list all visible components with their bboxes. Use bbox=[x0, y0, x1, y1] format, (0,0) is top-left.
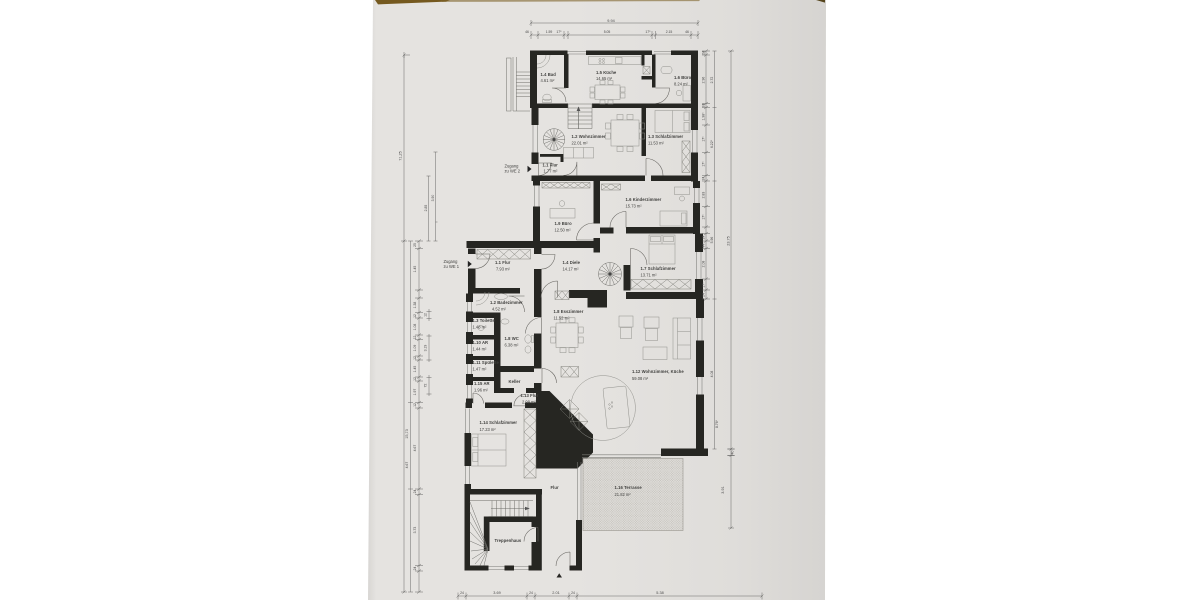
svg-text:1.4 Bad: 1.4 Bad bbox=[541, 72, 557, 77]
svg-text:4.67: 4.67 bbox=[413, 445, 417, 452]
svg-text:24: 24 bbox=[702, 293, 706, 297]
svg-text:17⁵: 17⁵ bbox=[702, 214, 706, 220]
svg-text:12.50 m²: 12.50 m² bbox=[555, 228, 572, 233]
svg-text:1.47 m²: 1.47 m² bbox=[473, 367, 488, 372]
svg-text:24: 24 bbox=[413, 567, 417, 571]
svg-text:46: 46 bbox=[525, 30, 529, 34]
svg-text:15.73 m²: 15.73 m² bbox=[626, 204, 643, 209]
svg-text:24: 24 bbox=[413, 490, 417, 494]
svg-text:24: 24 bbox=[571, 591, 575, 595]
svg-text:1.2 Badezimmer: 1.2 Badezimmer bbox=[490, 300, 523, 305]
svg-text:2.01: 2.01 bbox=[552, 591, 559, 595]
svg-text:9.94: 9.94 bbox=[607, 19, 614, 23]
svg-text:17⁵: 17⁵ bbox=[556, 30, 562, 34]
svg-text:1.77 m²: 1.77 m² bbox=[544, 169, 559, 174]
svg-text:1.1 Flur: 1.1 Flur bbox=[543, 163, 559, 168]
svg-text:1.59: 1.59 bbox=[546, 30, 553, 34]
svg-text:4.52 m²: 4.52 m² bbox=[492, 307, 507, 312]
svg-text:2.15: 2.15 bbox=[666, 30, 673, 34]
svg-text:3.91: 3.91 bbox=[721, 486, 725, 493]
svg-text:2.83: 2.83 bbox=[702, 192, 706, 199]
svg-text:25: 25 bbox=[413, 243, 417, 247]
svg-text:1.44 m²: 1.44 m² bbox=[473, 347, 488, 352]
svg-text:1.15 AR: 1.15 AR bbox=[474, 381, 490, 386]
svg-text:11.52 m²: 11.52 m² bbox=[554, 316, 570, 321]
svg-text:71,25: 71,25 bbox=[399, 151, 403, 161]
svg-text:12: 12 bbox=[413, 356, 417, 360]
svg-text:1.1 Flur: 1.1 Flur bbox=[495, 260, 511, 265]
svg-text:2.99 m²: 2.99 m² bbox=[522, 400, 537, 405]
svg-text:1.6 Kinderzimmer: 1.6 Kinderzimmer bbox=[626, 197, 662, 202]
svg-text:12: 12 bbox=[413, 336, 417, 340]
svg-text:1.48 m²: 1.48 m² bbox=[473, 325, 488, 330]
svg-text:5.38: 5.38 bbox=[656, 591, 663, 595]
svg-text:1.5 Küche: 1.5 Küche bbox=[596, 70, 617, 75]
svg-text:1.8 Esszimmer: 1.8 Esszimmer bbox=[554, 309, 584, 314]
svg-text:21.82 m²: 21.82 m² bbox=[615, 492, 632, 497]
svg-text:1.7 Schlafzimmer: 1.7 Schlafzimmer bbox=[641, 266, 676, 271]
svg-text:3.73: 3.73 bbox=[413, 527, 417, 534]
svg-text:Flur: Flur bbox=[551, 485, 559, 490]
svg-text:1.12 Wohnzimmer, Küche: 1.12 Wohnzimmer, Küche bbox=[632, 369, 684, 374]
svg-text:24: 24 bbox=[529, 591, 533, 595]
svg-text:1.11 Spülette: 1.11 Spülette bbox=[473, 360, 500, 365]
svg-text:13.71 m²: 13.71 m² bbox=[641, 273, 658, 278]
svg-text:1.2 Wohnzimmer: 1.2 Wohnzimmer bbox=[572, 134, 606, 139]
svg-text:zu WE 2: zu WE 2 bbox=[505, 169, 521, 174]
svg-text:14.65 m²: 14.65 m² bbox=[596, 76, 613, 81]
svg-text:12: 12 bbox=[413, 314, 417, 318]
svg-text:40: 40 bbox=[731, 451, 735, 455]
svg-text:12: 12 bbox=[413, 377, 417, 381]
svg-text:8.24 m²: 8.24 m² bbox=[674, 82, 689, 87]
svg-text:1.4 Diele: 1.4 Diele bbox=[563, 260, 581, 265]
svg-text:1.6 Büro: 1.6 Büro bbox=[674, 75, 692, 80]
svg-text:6.22⁵: 6.22⁵ bbox=[710, 139, 714, 148]
svg-text:1.14 Schlafzimmer: 1.14 Schlafzimmer bbox=[480, 420, 518, 425]
svg-text:1.10 AR: 1.10 AR bbox=[473, 340, 489, 345]
svg-text:5.96: 5.96 bbox=[710, 237, 714, 244]
svg-text:1.96 m²: 1.96 m² bbox=[474, 388, 489, 393]
svg-text:6.38 m²: 6.38 m² bbox=[505, 343, 520, 348]
svg-text:5.05: 5.05 bbox=[604, 30, 611, 34]
svg-text:17⁵: 17⁵ bbox=[645, 30, 651, 34]
svg-text:17.23 m²: 17.23 m² bbox=[480, 427, 497, 432]
svg-text:4.08: 4.08 bbox=[710, 371, 714, 378]
svg-text:4.61 m²: 4.61 m² bbox=[541, 78, 556, 83]
svg-text:zu WE 1: zu WE 1 bbox=[444, 264, 460, 269]
svg-text:72: 72 bbox=[424, 384, 428, 388]
svg-text:15,73: 15,73 bbox=[405, 429, 409, 439]
svg-text:1.13 Flur: 1.13 Flur bbox=[521, 393, 539, 398]
svg-text:17⁵: 17⁵ bbox=[702, 282, 706, 288]
svg-text:1.8 WC: 1.8 WC bbox=[505, 336, 519, 341]
svg-text:Keller: Keller bbox=[509, 379, 521, 384]
svg-text:24: 24 bbox=[460, 591, 464, 595]
svg-text:44⁵: 44⁵ bbox=[702, 242, 706, 248]
svg-text:1.16 Terrasse: 1.16 Terrasse bbox=[615, 485, 643, 490]
svg-text:12: 12 bbox=[424, 313, 428, 317]
svg-text:14.17 m²: 14.17 m² bbox=[563, 267, 580, 272]
svg-text:1.45: 1.45 bbox=[413, 266, 417, 273]
svg-text:Treppenhaus: Treppenhaus bbox=[495, 538, 522, 543]
svg-text:17⁵: 17⁵ bbox=[702, 136, 706, 142]
svg-text:4.67: 4.67 bbox=[405, 462, 409, 469]
svg-text:1.09: 1.09 bbox=[413, 345, 417, 352]
svg-text:8.76⁵: 8.76⁵ bbox=[715, 419, 719, 428]
svg-text:1.9 Büro: 1.9 Büro bbox=[555, 221, 573, 226]
svg-text:12: 12 bbox=[413, 403, 417, 407]
svg-text:24: 24 bbox=[702, 236, 706, 240]
svg-text:3.90: 3.90 bbox=[431, 195, 435, 202]
svg-text:1.08: 1.08 bbox=[413, 324, 417, 331]
svg-text:11.53 m²: 11.53 m² bbox=[648, 141, 664, 146]
svg-text:22.01 m²: 22.01 m² bbox=[572, 141, 589, 146]
svg-text:1.38⁵: 1.38⁵ bbox=[702, 112, 706, 121]
svg-text:17⁵: 17⁵ bbox=[702, 161, 706, 167]
svg-text:1.3 Schlafzimmer: 1.3 Schlafzimmer bbox=[648, 134, 683, 139]
svg-text:23.75: 23.75 bbox=[727, 236, 731, 246]
svg-text:46: 46 bbox=[685, 30, 689, 34]
svg-text:24: 24 bbox=[702, 177, 706, 181]
svg-text:24: 24 bbox=[702, 51, 706, 55]
svg-text:1.38: 1.38 bbox=[413, 302, 417, 309]
svg-text:2.85: 2.85 bbox=[424, 205, 428, 212]
svg-text:7.93 m²: 7.93 m² bbox=[496, 267, 511, 272]
svg-text:2.96: 2.96 bbox=[702, 77, 706, 84]
svg-text:1.45: 1.45 bbox=[413, 366, 417, 373]
svg-text:1.97: 1.97 bbox=[413, 389, 417, 396]
svg-text:59.08 m²: 59.08 m² bbox=[632, 376, 649, 381]
svg-text:2.08: 2.08 bbox=[702, 261, 706, 268]
svg-text:2.72: 2.72 bbox=[710, 77, 714, 84]
svg-text:3.19: 3.19 bbox=[424, 345, 428, 352]
svg-text:3.69: 3.69 bbox=[493, 591, 500, 595]
svg-text:24: 24 bbox=[702, 104, 706, 108]
svg-text:1.3 Toilette: 1.3 Toilette bbox=[473, 318, 496, 323]
